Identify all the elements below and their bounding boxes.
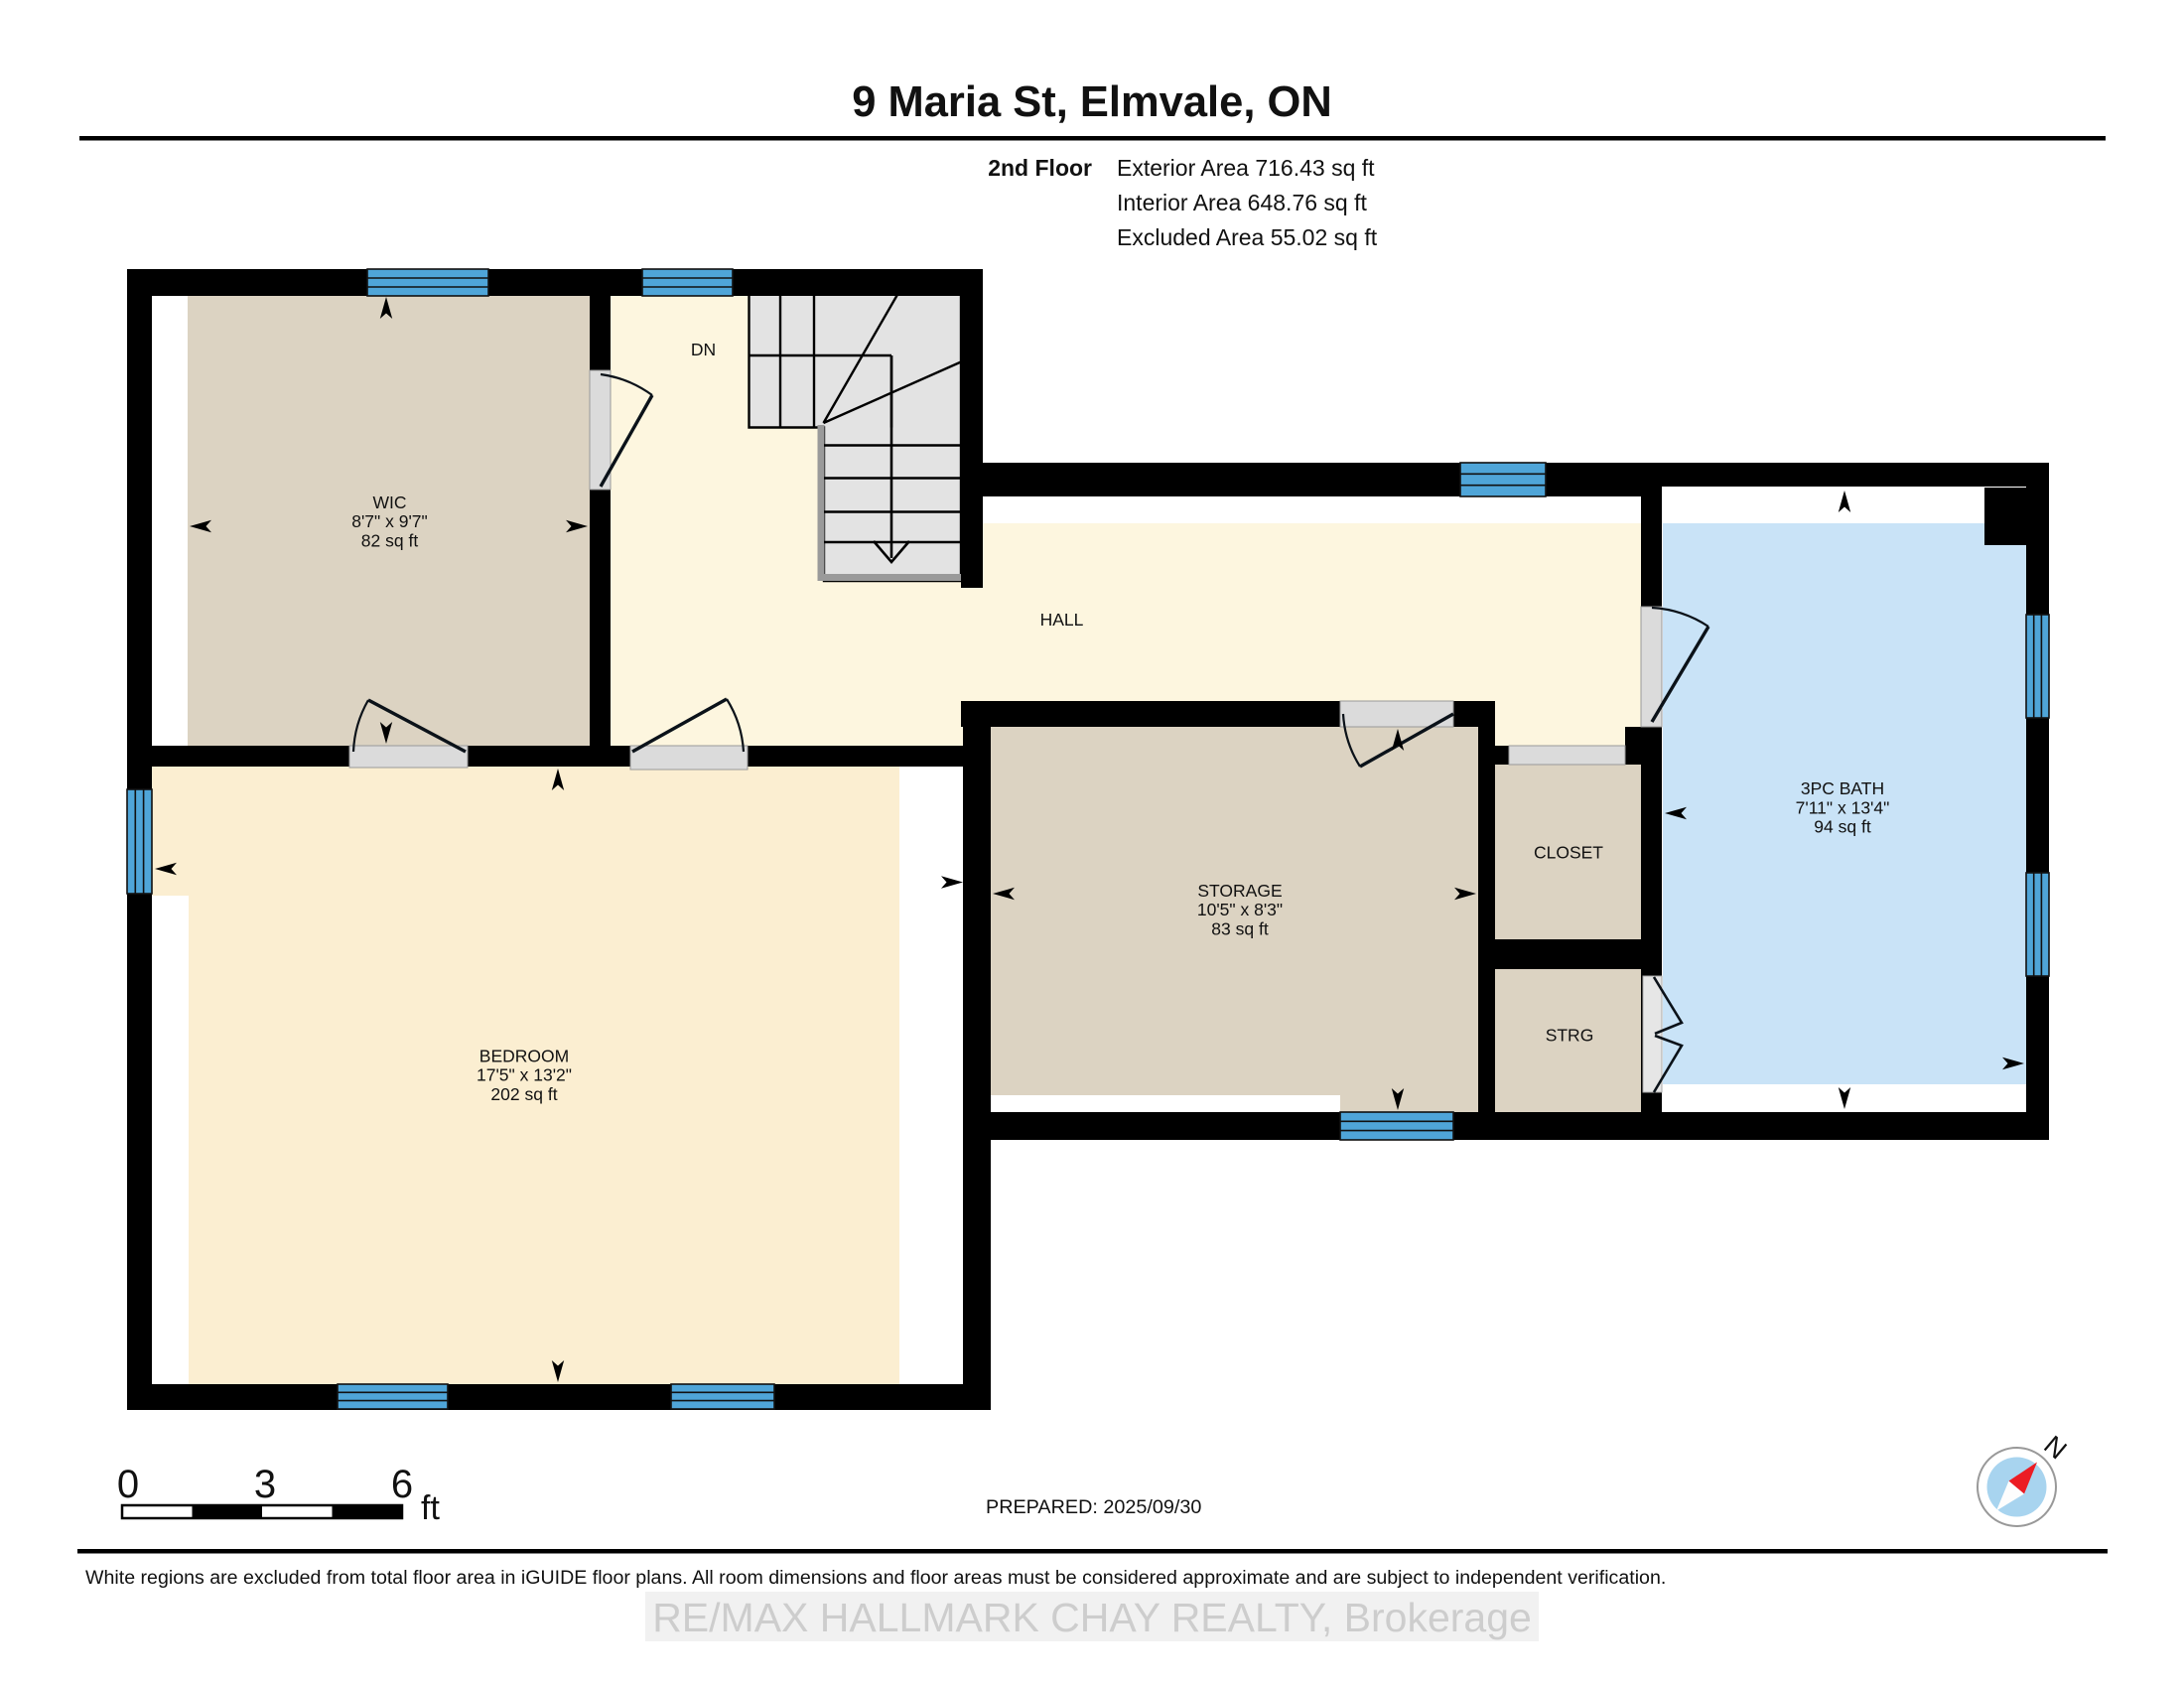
svg-text:6: 6	[391, 1463, 413, 1506]
svg-text:83 sq ft: 83 sq ft	[1211, 918, 1269, 938]
svg-text:10'5" x 8'3": 10'5" x 8'3"	[1197, 900, 1283, 919]
svg-text:WIC: WIC	[372, 492, 406, 512]
svg-text:0: 0	[117, 1463, 139, 1506]
svg-text:94 sq ft: 94 sq ft	[1814, 817, 1871, 837]
svg-text:3: 3	[254, 1463, 276, 1506]
svg-text:Exterior Area 716.43 sq ft: Exterior Area 716.43 sq ft	[1117, 155, 1375, 181]
svg-text:82 sq ft: 82 sq ft	[361, 530, 419, 550]
svg-text:DN: DN	[691, 340, 716, 359]
svg-text:8'7" x 9'7": 8'7" x 9'7"	[351, 511, 428, 531]
svg-text:STORAGE: STORAGE	[1197, 881, 1282, 901]
svg-text:17'5" x 13'2": 17'5" x 13'2"	[477, 1065, 572, 1085]
svg-text:Excluded Area 55.02 sq ft: Excluded Area 55.02 sq ft	[1117, 224, 1378, 250]
svg-text:PREPARED: 2025/09/30: PREPARED: 2025/09/30	[986, 1496, 1201, 1518]
svg-text:Interior Area 648.76 sq ft: Interior Area 648.76 sq ft	[1117, 190, 1367, 215]
svg-text:3PC BATH: 3PC BATH	[1801, 778, 1884, 798]
svg-text:202 sq ft: 202 sq ft	[490, 1084, 557, 1104]
svg-text:White regions are excluded fro: White regions are excluded from total fl…	[85, 1567, 1666, 1589]
svg-text:7'11" x 13'4": 7'11" x 13'4"	[1796, 797, 1890, 817]
svg-text:HALL: HALL	[1040, 610, 1084, 630]
svg-text:ft: ft	[421, 1489, 440, 1527]
svg-text:BEDROOM: BEDROOM	[479, 1047, 569, 1066]
svg-text:9 Maria St, Elmvale, ON: 9 Maria St, Elmvale, ON	[852, 78, 1332, 126]
svg-text:STRG: STRG	[1546, 1026, 1594, 1046]
svg-text:2nd Floor: 2nd Floor	[988, 155, 1092, 181]
svg-text:CLOSET: CLOSET	[1534, 843, 1603, 863]
svg-text:RE/MAX HALLMARK CHAY REALTY, B: RE/MAX HALLMARK CHAY REALTY, Brokerage	[652, 1595, 1532, 1640]
